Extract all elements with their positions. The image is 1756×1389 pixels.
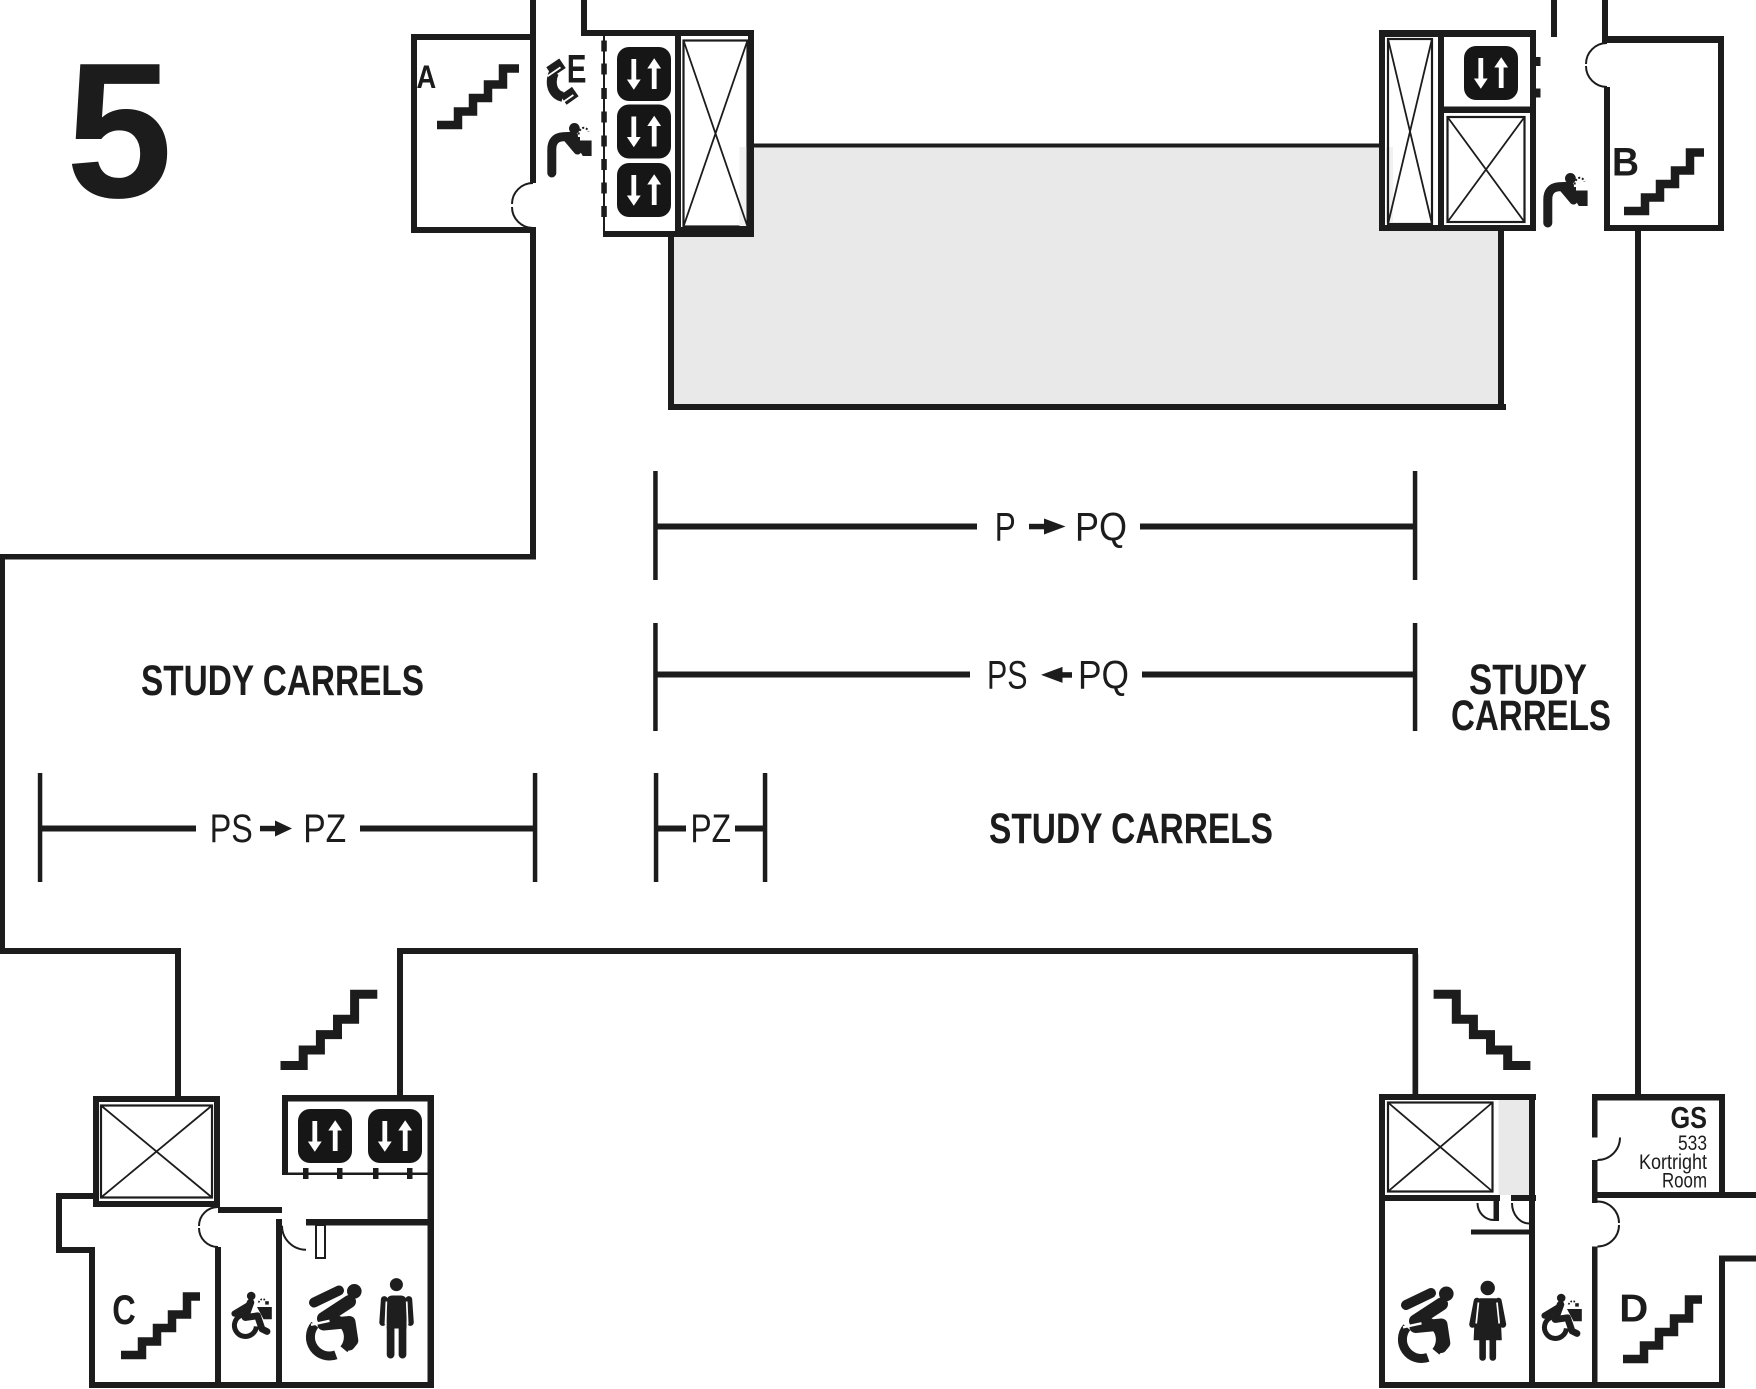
svg-text:PQ: PQ [1075, 506, 1127, 550]
svg-text:CARRELS: CARRELS [1451, 692, 1611, 740]
svg-text:P: P [995, 506, 1016, 550]
svg-text:STUDY CARRELS: STUDY CARRELS [989, 805, 1273, 853]
svg-text:PZ: PZ [691, 807, 732, 851]
svg-text:PZ: PZ [303, 807, 346, 851]
svg-text:PQ: PQ [1078, 654, 1129, 698]
svg-text:PS: PS [210, 807, 253, 851]
svg-text:B: B [1612, 141, 1639, 185]
svg-text:C: C [112, 1286, 136, 1333]
svg-text:A: A [417, 59, 437, 95]
svg-text:GS: GS [1671, 1100, 1708, 1135]
svg-text:5: 5 [66, 22, 173, 238]
svg-text:PS: PS [987, 654, 1028, 698]
svg-text:D: D [1619, 1288, 1648, 1331]
svg-text:Room: Room [1662, 1169, 1707, 1193]
svg-text:STUDY CARRELS: STUDY CARRELS [141, 657, 424, 705]
svg-text:E: E [567, 48, 587, 92]
